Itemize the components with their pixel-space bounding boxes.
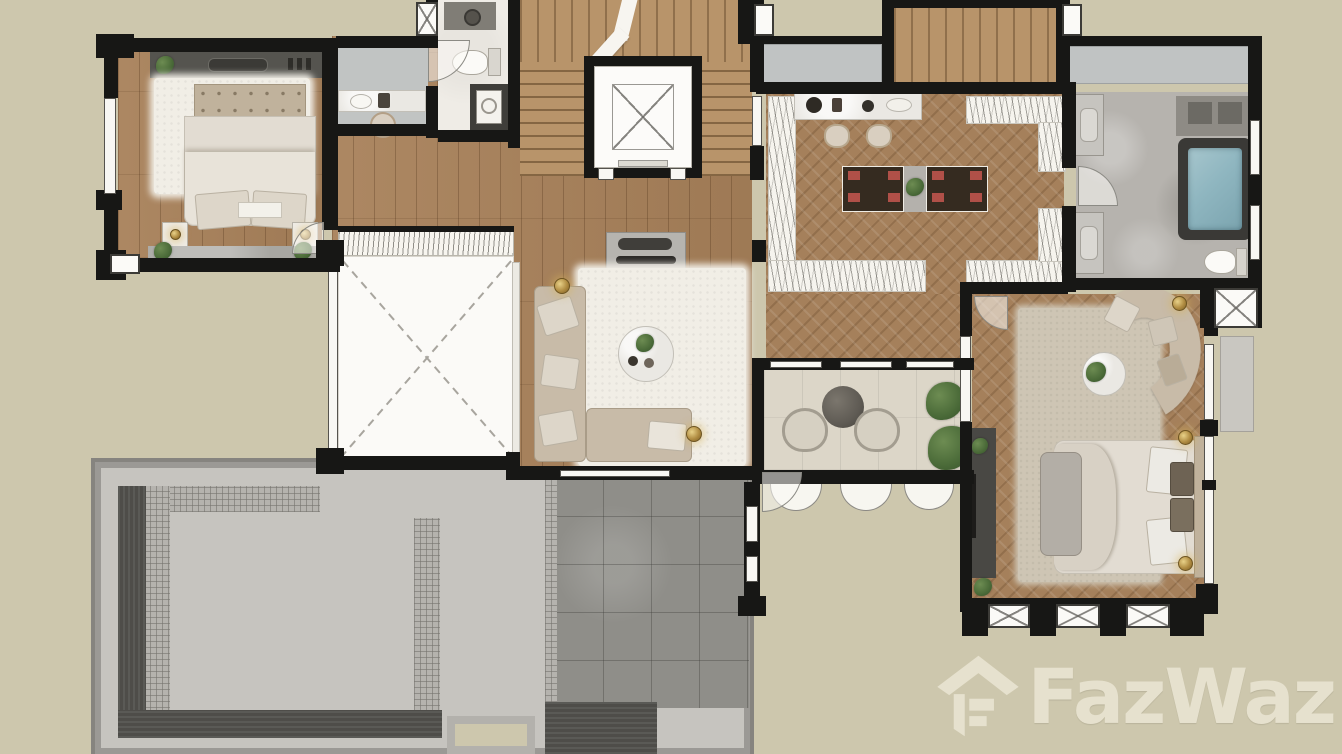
- floor-lamp-icon: [554, 278, 570, 294]
- wall-segment: [752, 240, 766, 262]
- window-strip: [752, 96, 762, 146]
- toilet-tank: [488, 48, 501, 76]
- bed-pillow-dark: [1170, 462, 1194, 496]
- wall-segment: [750, 36, 882, 44]
- wall-segment: [1062, 82, 1076, 168]
- bed-bench: [1040, 452, 1082, 556]
- placemat: [970, 171, 982, 180]
- bed-pillow-dark: [1170, 498, 1194, 532]
- wall-segment: [104, 38, 118, 98]
- wall-pier: [1100, 598, 1126, 636]
- placemat: [932, 193, 944, 202]
- counter-platter: [886, 98, 912, 112]
- table-lamp-icon: [170, 229, 181, 240]
- wall-segment: [1200, 420, 1218, 436]
- wall-segment: [104, 38, 336, 52]
- placemat: [888, 171, 900, 180]
- wall-pier: [738, 596, 766, 616]
- kitchen-cabinet-bottom-left: [768, 260, 926, 292]
- wall-segment: [756, 82, 1068, 94]
- table-bowl: [644, 358, 654, 368]
- floor-lamp-icon: [686, 426, 702, 442]
- void-right-mullion: [512, 262, 520, 462]
- wall-pier: [1030, 598, 1056, 636]
- window-strip: [906, 361, 954, 368]
- window-strip: [1204, 344, 1214, 420]
- balcony-chair: [854, 408, 900, 452]
- wall-segment: [336, 36, 438, 48]
- toilet-bowl: [1204, 250, 1236, 274]
- placemat: [888, 193, 900, 202]
- window-strip: [104, 98, 116, 194]
- kitchen-corridor-floor: [766, 294, 962, 358]
- folding-door-arc: [840, 484, 892, 511]
- wall-segment: [338, 226, 514, 232]
- terrace-coping-top: [144, 486, 320, 512]
- sofa-pillow: [647, 420, 687, 451]
- elevator-cross: [612, 84, 674, 150]
- wall-segment: [438, 130, 520, 142]
- wall-pier: [1170, 598, 1204, 636]
- table-bowl: [628, 356, 638, 366]
- console-tray: [618, 238, 672, 250]
- window-strip: [598, 168, 614, 180]
- terrace-dark-band-bottom: [118, 710, 442, 738]
- floor-lamp-icon: [1178, 556, 1193, 571]
- bath-mat: [1218, 102, 1242, 124]
- stone-terrace-edge: [545, 468, 557, 708]
- vanity-sink-basin: [1080, 108, 1098, 142]
- window-box: [1056, 604, 1100, 628]
- watermark: FazWaz: [930, 642, 1335, 750]
- stair-flight-right: [702, 62, 752, 176]
- terrace-coping-right: [414, 518, 440, 718]
- bath-mat: [1188, 102, 1212, 124]
- window-unit-box: [1214, 288, 1258, 328]
- stone-terrace: [555, 468, 749, 708]
- terrace-planter: [447, 716, 535, 754]
- bathtub-water: [1188, 148, 1242, 230]
- console-soundbar: [616, 256, 676, 264]
- window-strip: [960, 336, 971, 422]
- ac-ledge-top-right: [1068, 46, 1252, 84]
- wall-segment: [894, 0, 1062, 8]
- floor-lamp-icon: [1172, 296, 1187, 311]
- stone-terrace-dark-band: [545, 702, 657, 754]
- window-strip: [670, 168, 686, 180]
- window-box: [988, 604, 1030, 628]
- window-box: [754, 4, 774, 36]
- wall-segment: [960, 282, 1068, 294]
- wall-segment: [752, 358, 764, 482]
- vanity-sink-basin: [1080, 226, 1098, 260]
- top-corridor-floor: [894, 8, 1056, 82]
- elevator-door-sill: [618, 160, 668, 167]
- toilet-tank: [1236, 248, 1247, 276]
- window-strip: [746, 506, 758, 542]
- wall-segment: [336, 124, 428, 136]
- sofa-pillow: [540, 354, 580, 391]
- window-strip: [1204, 436, 1214, 584]
- wall-pier: [962, 598, 988, 636]
- window-strip: [840, 361, 892, 368]
- washer-door-icon: [481, 98, 497, 114]
- balcony-chair: [782, 408, 828, 452]
- placemat: [848, 171, 860, 180]
- window-strip: [1250, 120, 1260, 175]
- ledge-right: [1220, 336, 1254, 432]
- wall-segment: [882, 0, 894, 90]
- placemat: [970, 193, 982, 202]
- window-strip: [1250, 205, 1260, 260]
- fazwaz-house-icon: [930, 646, 1021, 746]
- vanity-brushes: [378, 93, 390, 108]
- shower-head-icon: [464, 9, 481, 26]
- window-box: [416, 2, 438, 36]
- window-box: [1126, 604, 1170, 628]
- window-box: [1062, 4, 1082, 36]
- counter-item: [862, 100, 874, 112]
- coffee-machine-icon: [806, 97, 822, 113]
- wall-segment: [960, 294, 972, 336]
- void-area: [338, 256, 514, 458]
- wall-segment: [1202, 480, 1216, 490]
- bedroom2-headboard: [194, 84, 306, 118]
- vanity-mirror-tray: [350, 94, 372, 109]
- watermark-text: FazWaz: [1027, 652, 1335, 741]
- bar-stool: [824, 124, 850, 148]
- wall-pier: [316, 448, 344, 474]
- floor-plan-scene: FazWaz: [0, 0, 1342, 754]
- placemat: [848, 193, 860, 202]
- bar-stool: [866, 124, 892, 148]
- floor-lamp-icon: [1178, 430, 1193, 445]
- wall-segment: [1066, 36, 1262, 46]
- bed-tray: [238, 202, 282, 218]
- placemat: [932, 171, 944, 180]
- wall-segment: [508, 0, 520, 148]
- wall-pier: [316, 240, 344, 266]
- wall-segment: [320, 456, 520, 470]
- sofa-pillow: [537, 409, 578, 447]
- stair-landing: [520, 0, 752, 62]
- bedroom2-dresser-tray: [208, 58, 268, 72]
- window-box: [110, 254, 140, 274]
- window-strip: [746, 556, 758, 582]
- wall-segment: [744, 482, 760, 604]
- wall-segment: [750, 146, 764, 180]
- wall-segment: [506, 452, 520, 480]
- kitchen-cabinet-top-right: [966, 96, 1066, 124]
- bedroom2-sink-items: [288, 58, 314, 70]
- window-strip: [770, 361, 822, 368]
- void-window-strip: [328, 268, 338, 458]
- void-shelf-hatch: [338, 230, 514, 256]
- folding-door-arc: [904, 484, 954, 510]
- void-cross-dashed: [339, 257, 515, 459]
- terrace-dark-band-left: [118, 486, 146, 738]
- wall-segment: [960, 422, 972, 612]
- wall-segment: [738, 0, 750, 44]
- terrace-coping-left: [144, 486, 170, 738]
- stair-flight-left: [520, 62, 584, 176]
- window-strip: [560, 470, 670, 477]
- counter-item: [832, 98, 842, 112]
